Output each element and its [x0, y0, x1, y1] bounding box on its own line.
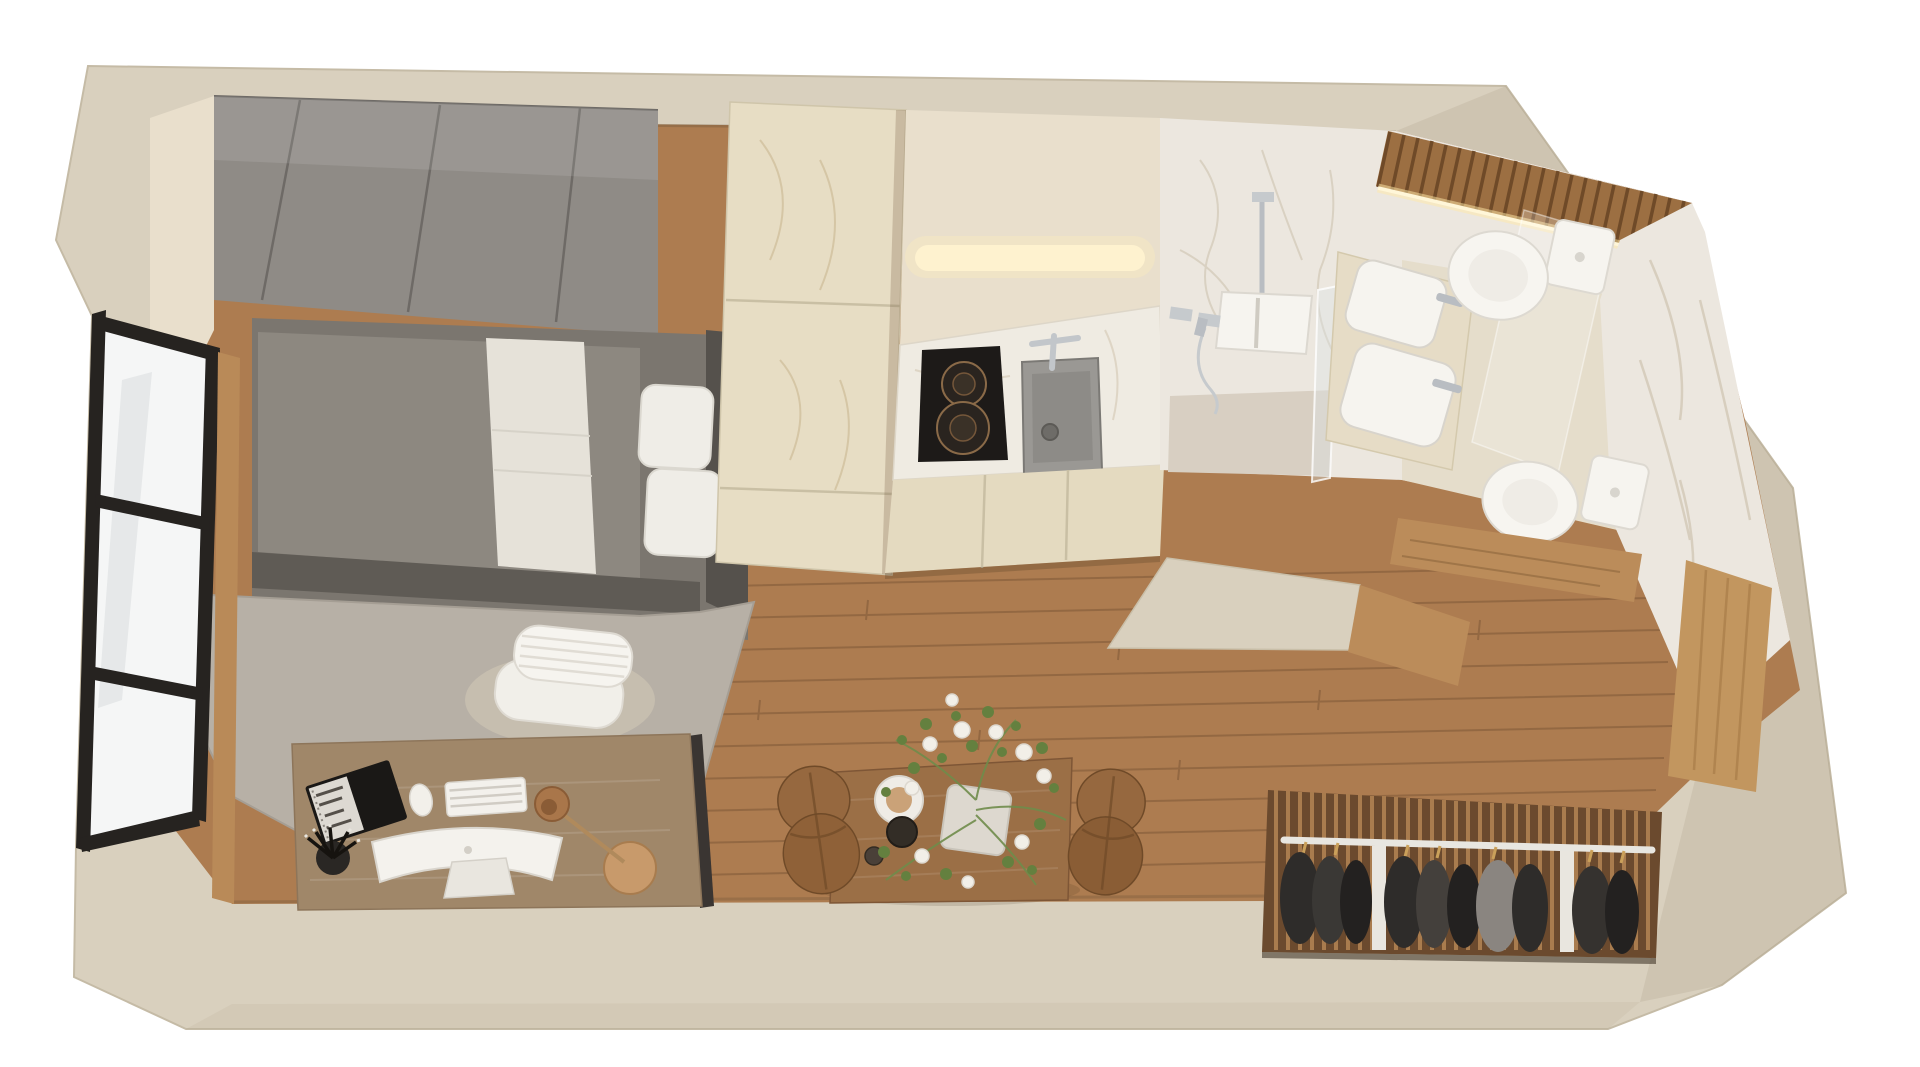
burner-small-inner	[953, 373, 975, 395]
lower-cabinets	[885, 465, 1164, 573]
cooktop	[918, 346, 1008, 462]
closet-divider-2	[1560, 850, 1574, 952]
lamp-base	[604, 842, 656, 894]
shower-floor	[1168, 390, 1336, 476]
bed-pillow-2	[644, 468, 722, 558]
dark-cup	[887, 817, 917, 847]
shower-plate-slot	[1256, 298, 1258, 348]
rain-shower-plate	[1216, 292, 1312, 354]
imac-logo	[464, 846, 472, 854]
bedroom	[76, 96, 754, 910]
sink-drain	[1042, 424, 1058, 440]
garment	[1512, 864, 1548, 952]
wardrobe	[214, 96, 658, 336]
shower-arm-mount	[1252, 192, 1274, 202]
garment	[1340, 860, 1372, 944]
led-strip	[905, 236, 1155, 278]
bed-pillow-1	[638, 384, 714, 470]
bed	[252, 318, 748, 640]
keyboard	[445, 777, 527, 816]
closet	[1262, 790, 1662, 964]
burner-large-inner	[950, 415, 976, 441]
imac-stand	[444, 858, 514, 898]
window	[76, 310, 240, 904]
wall-shade-bottom	[186, 1002, 1640, 1029]
desk	[292, 734, 714, 910]
kitchen-back-wall	[900, 110, 1160, 345]
closet-divider-1	[1372, 846, 1386, 950]
kitchen	[716, 102, 1164, 579]
bed-sheet-band	[486, 338, 596, 574]
apartment-render	[0, 0, 1920, 1067]
tall-cabinets	[716, 102, 906, 575]
garment	[1447, 864, 1481, 948]
sink-bowl	[1032, 371, 1093, 463]
lamp-head-inner	[541, 799, 557, 815]
led-glow-core	[915, 245, 1145, 271]
garment	[1605, 870, 1639, 954]
garment	[1416, 860, 1452, 948]
